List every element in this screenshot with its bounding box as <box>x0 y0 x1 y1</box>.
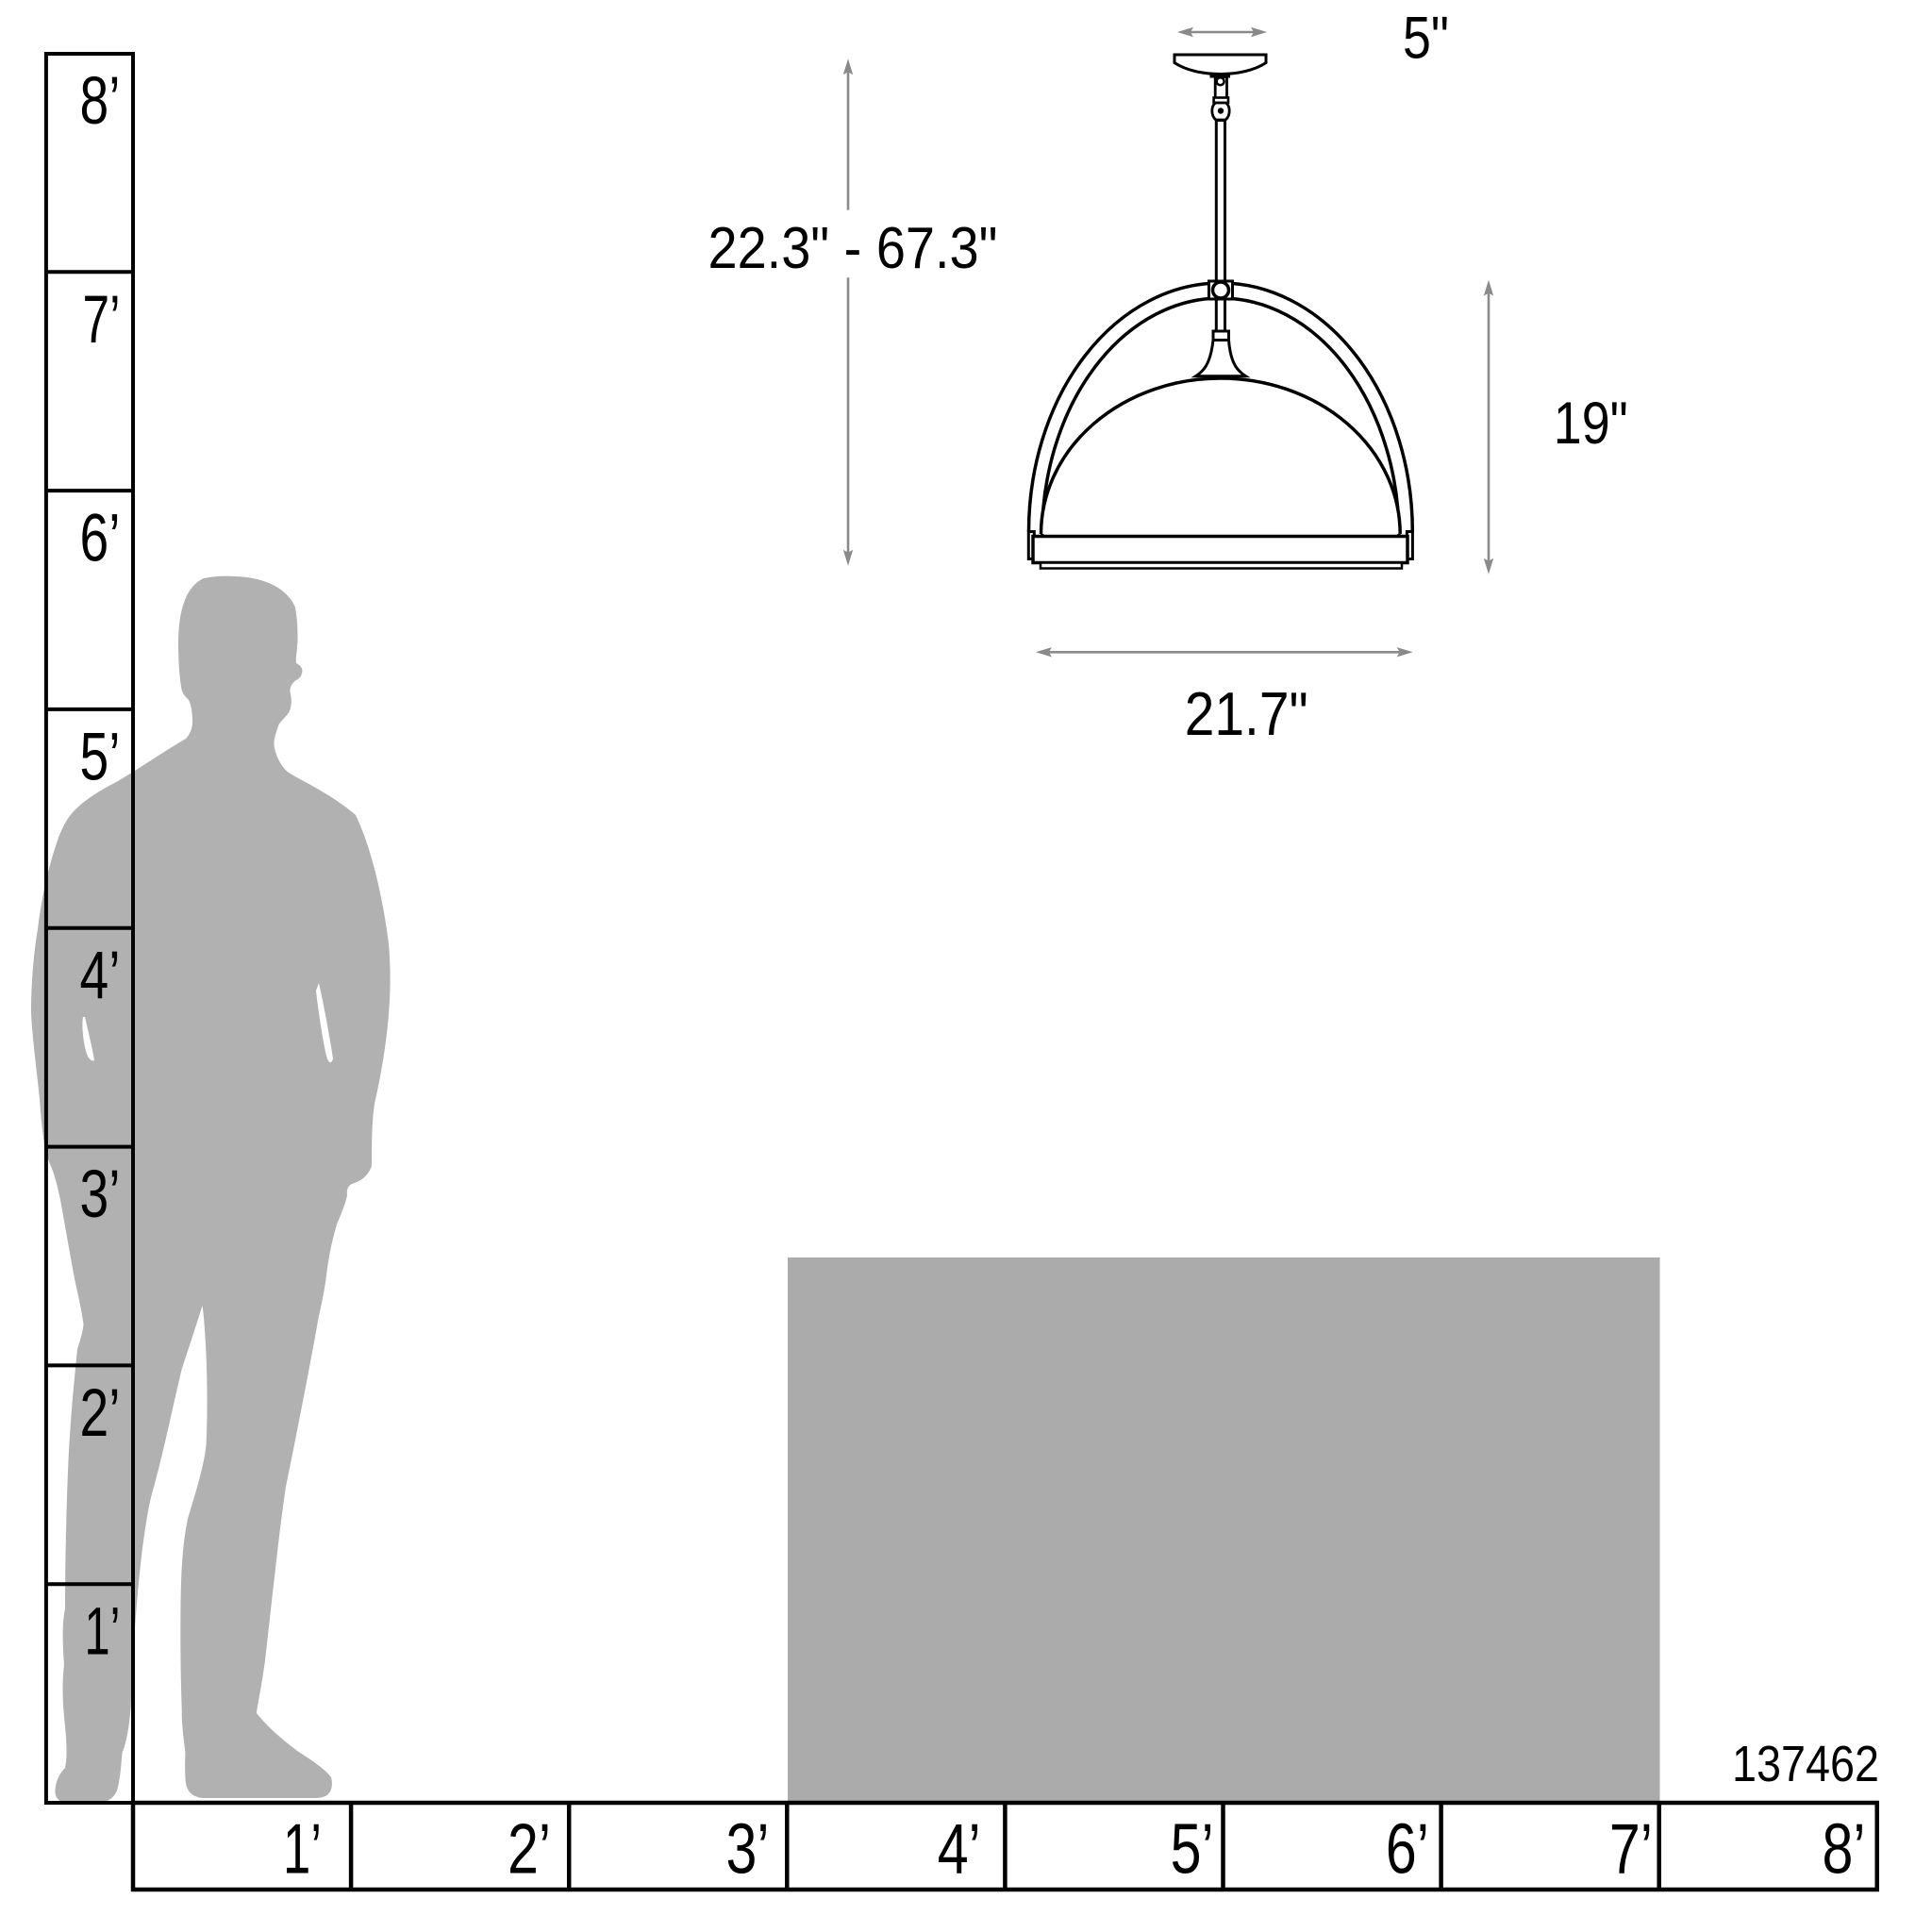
svg-text:6’: 6’ <box>1386 1809 1429 1889</box>
svg-text:2’: 2’ <box>80 1376 121 1451</box>
svg-text:8’: 8’ <box>80 64 121 139</box>
svg-text:7’: 7’ <box>1609 1809 1653 1889</box>
svg-text:4’: 4’ <box>938 1809 981 1889</box>
svg-text:1’: 1’ <box>283 1809 322 1889</box>
svg-text:19": 19" <box>1554 391 1628 457</box>
svg-text:6’: 6’ <box>80 502 121 576</box>
svg-text:22.3" - 67.3": 22.3" - 67.3" <box>708 216 998 281</box>
svg-text:137462: 137462 <box>1732 1736 1879 1792</box>
svg-text:21.7": 21.7" <box>1185 679 1308 748</box>
svg-text:7’: 7’ <box>83 283 121 358</box>
svg-text:2’: 2’ <box>508 1809 551 1889</box>
svg-text:5": 5" <box>1403 6 1449 72</box>
svg-text:3’: 3’ <box>726 1809 770 1889</box>
svg-text:8’: 8’ <box>1823 1809 1866 1889</box>
svg-text:5’: 5’ <box>80 720 121 794</box>
svg-text:3’: 3’ <box>80 1158 121 1232</box>
svg-text:4’: 4’ <box>80 939 121 1013</box>
svg-text:5’: 5’ <box>1171 1809 1214 1889</box>
svg-text:1’: 1’ <box>85 1595 121 1670</box>
